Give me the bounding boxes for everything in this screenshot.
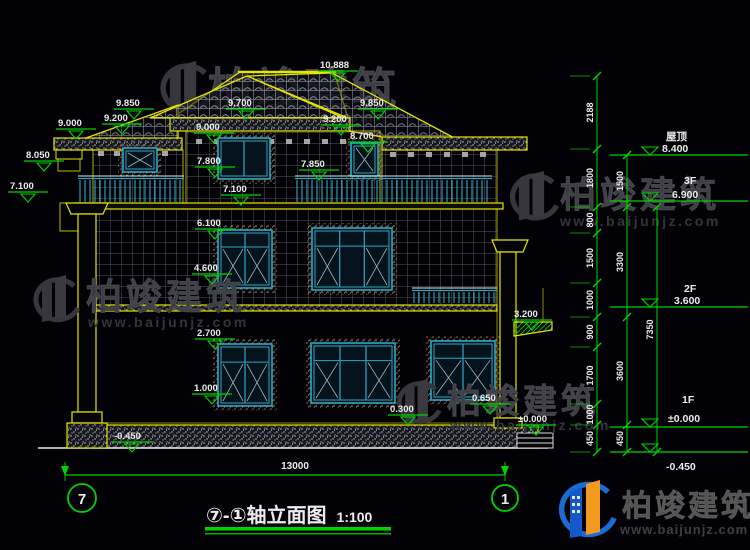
- entry-steps: [517, 433, 553, 448]
- window: [213, 339, 277, 411]
- floor-label: 屋顶: [666, 131, 687, 143]
- elevation-value: 9.000: [58, 118, 82, 129]
- title-axis-prefix: ⑦-①: [206, 505, 247, 527]
- window-frame: [312, 228, 392, 290]
- window: [307, 223, 397, 295]
- elevation-triangle: [127, 111, 141, 119]
- dim-value: 3300: [615, 252, 625, 272]
- elevation-value: 9.000: [196, 122, 220, 133]
- floor-value: -0.450: [666, 461, 696, 473]
- title-scale: 1:100: [337, 509, 373, 525]
- overall-width-value: 13000: [281, 461, 309, 472]
- axis-bubble-1: 1: [492, 485, 518, 511]
- elevation-value: 9.850: [116, 98, 140, 109]
- watermark-logo-icon: [36, 275, 78, 322]
- logo-tower-blue: [570, 488, 582, 538]
- window: [306, 338, 400, 408]
- dim-value: 1000: [585, 290, 595, 310]
- title-underline-thin: [205, 533, 391, 535]
- window: [213, 133, 275, 184]
- dentil: [340, 139, 346, 144]
- elevation-value: 6.100: [197, 218, 221, 229]
- watermark-url-text: www.baijunjz.com: [87, 314, 249, 330]
- dentil: [196, 139, 202, 144]
- elevation-value: 8.700: [350, 131, 374, 142]
- cad-viewport: 柏竣建筑 www.baijunjz.com: [0, 0, 750, 550]
- dentil: [286, 139, 292, 144]
- dim-value: 800: [585, 212, 595, 227]
- floor-label: 2F: [684, 283, 697, 295]
- elevation-value: 2.700: [197, 328, 221, 339]
- dim-value: 1000: [585, 404, 595, 424]
- elevation-triangle: [21, 194, 35, 202]
- dentil: [462, 152, 468, 157]
- brand-logo: 柏竣建筑 www.baijunjz.com: [562, 480, 750, 538]
- elevation-value: 7.800: [197, 156, 221, 167]
- axis-bubble-7: 7: [68, 484, 96, 512]
- dim-value: 1500: [615, 171, 625, 191]
- dentil: [390, 152, 396, 157]
- svg-text:⑦-①轴立面图1:100: ⑦-①轴立面图1:100: [206, 503, 373, 527]
- balcony-slab-3f: [75, 203, 503, 209]
- floor-marker-2f: 2F 3.600: [610, 283, 748, 307]
- dimension-chain: 7350: [645, 203, 661, 456]
- dentil: [426, 152, 432, 157]
- elevation-value: -0.450: [114, 431, 141, 442]
- dim-value: 1800: [585, 168, 595, 188]
- floor-label: 3F: [684, 175, 697, 187]
- dim-value: 450: [585, 431, 595, 446]
- dentil: [408, 152, 414, 157]
- elevation-triangle: [37, 163, 51, 171]
- eave-band-right: [382, 137, 527, 150]
- window: [118, 143, 162, 177]
- dentil: [162, 151, 168, 156]
- elevation-value: 0.300: [390, 404, 414, 415]
- elevation-value: 7.100: [223, 184, 247, 195]
- elevation-value: 1.000: [194, 383, 218, 394]
- title-text: 轴立面图: [247, 503, 327, 527]
- elevation-drawing: 柏竣建筑 www.baijunjz.com: [0, 0, 750, 550]
- dentil: [98, 151, 104, 156]
- dentil: [480, 152, 486, 157]
- drawing-title: ⑦-①轴立面图1:100: [205, 503, 391, 535]
- axis-number: 1: [501, 491, 509, 508]
- axis-number: 7: [78, 491, 86, 508]
- elevation-value: 9.700: [228, 98, 252, 109]
- elevation-value: ±0.000: [518, 414, 547, 425]
- dim-value: 450: [615, 431, 625, 446]
- watermark-url-text: www.baijunjz.com: [559, 213, 721, 229]
- elevation-value: 4.600: [194, 263, 218, 274]
- floor-value: 8.400: [662, 143, 688, 155]
- watermark-logo-icon: [513, 171, 557, 220]
- logo-brand-text: 柏竣建筑: [622, 489, 750, 523]
- dim-value: 7350: [645, 319, 655, 339]
- elevation-value: 9.850: [360, 98, 384, 109]
- elevation-value: 7.850: [301, 159, 325, 170]
- elevation-value: 8.050: [26, 150, 50, 161]
- dim-value: 1500: [585, 248, 595, 268]
- dentil: [444, 152, 450, 157]
- title-underline-thick: [205, 527, 391, 531]
- elevation-value: 9.200: [104, 113, 128, 124]
- cornice-left-upper: [56, 150, 82, 159]
- floor-value: ±0.000: [668, 413, 700, 425]
- logo-tower-orange: [586, 480, 600, 535]
- elevation-value: 7.100: [10, 181, 34, 192]
- floor-value: 6.900: [672, 189, 698, 201]
- floor-value: 3.600: [674, 295, 700, 307]
- elevation-value: 3.200: [514, 309, 538, 320]
- window-frame: [311, 343, 395, 403]
- brand-logo-icon: [562, 480, 614, 538]
- dim-value: 900: [585, 324, 595, 339]
- elevation-value: 0.650: [472, 393, 496, 404]
- dim-value: 2188: [585, 102, 595, 122]
- logo-url-text: www.baijunjz.com: [619, 522, 748, 537]
- floor-label: 1F: [682, 394, 695, 406]
- dentil: [322, 139, 328, 144]
- dim-value: 3600: [615, 361, 625, 381]
- elevation-marker: 7.100: [8, 181, 48, 202]
- overall-width-dimension: 13000: [61, 461, 509, 481]
- watermark-left: 柏竣建筑 www.baijunjz.com: [86, 276, 249, 330]
- elevation-value: 10.888: [320, 60, 349, 71]
- dentil: [304, 139, 310, 144]
- watermark-brand-text: 柏竣建筑: [86, 276, 246, 317]
- elevation-value: 9.200: [323, 114, 347, 125]
- dim-value: 1700: [585, 365, 595, 385]
